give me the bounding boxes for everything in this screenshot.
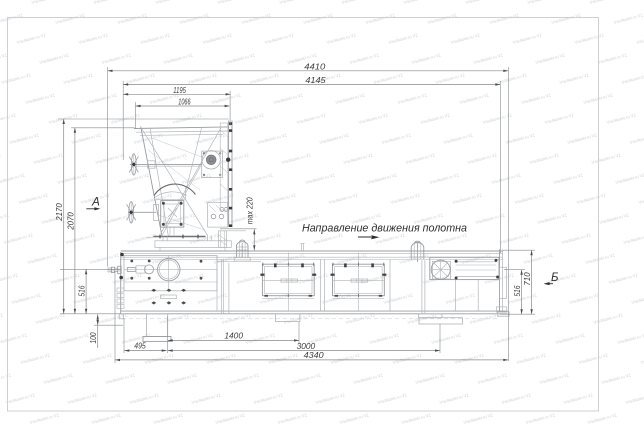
svg-text:VseStanki.ru V2: VseStanki.ru V2 xyxy=(328,192,359,205)
svg-text:VseStanki.ru V2: VseStanki.ru V2 xyxy=(405,152,436,165)
svg-text:VseStanki.ru V2: VseStanki.ru V2 xyxy=(629,132,644,145)
svg-text:VseStanki.ru V2: VseStanki.ru V2 xyxy=(555,332,586,345)
svg-text:VseStanki.ru V2: VseStanki.ru V2 xyxy=(33,152,64,165)
svg-text:VseStanki.ru V2: VseStanki.ru V2 xyxy=(608,272,639,285)
svg-text:VseStanki.ru V2: VseStanki.ru V2 xyxy=(390,192,421,205)
svg-text:VseStanki.ru V2: VseStanki.ru V2 xyxy=(189,232,220,245)
svg-text:4145: 4145 xyxy=(305,75,326,85)
svg-text:VseStanki.ru V2: VseStanki.ru V2 xyxy=(561,232,592,245)
svg-text:VseStanki.ru V2: VseStanki.ru V2 xyxy=(606,112,637,125)
svg-text:VseStanki.ru V2: VseStanki.ru V2 xyxy=(501,392,532,405)
svg-text:VseStanki.ru V2: VseStanki.ru V2 xyxy=(625,392,644,405)
svg-text:VseStanki.ru V2: VseStanki.ru V2 xyxy=(388,32,419,45)
svg-text:516: 516 xyxy=(77,285,87,296)
svg-text:VseStanki.ru V2: VseStanki.ru V2 xyxy=(621,72,644,85)
svg-text:VseStanki.ru V2: VseStanki.ru V2 xyxy=(82,352,113,365)
svg-text:VseStanki.ru V2: VseStanki.ru V2 xyxy=(397,92,428,105)
svg-text:VseStanki.ru V2: VseStanki.ru V2 xyxy=(589,0,620,5)
svg-text:VseStanki.ru V2: VseStanki.ru V2 xyxy=(0,332,28,345)
svg-text:VseStanki.ru V2: VseStanki.ru V2 xyxy=(429,172,460,185)
svg-text:100: 100 xyxy=(88,332,98,343)
svg-text:VseStanki.ru V2: VseStanki.ru V2 xyxy=(613,12,644,25)
svg-text:VseStanki.ru V2: VseStanki.ru V2 xyxy=(245,332,276,345)
svg-text:VseStanki.ru V2: VseStanki.ru V2 xyxy=(369,332,400,345)
svg-text:VseStanki.ru V2: VseStanki.ru V2 xyxy=(439,392,470,405)
svg-text:VseStanki.ru V2: VseStanki.ru V2 xyxy=(539,372,570,385)
svg-text:VseStanki.ru V2: VseStanki.ru V2 xyxy=(172,112,203,125)
svg-text:VseStanki.ru V2: VseStanki.ru V2 xyxy=(25,92,56,105)
svg-text:VseStanki.ru V2: VseStanki.ru V2 xyxy=(392,352,423,365)
svg-text:VseStanki.ru V2: VseStanki.ru V2 xyxy=(125,72,156,85)
svg-text:VseStanki.ru V2: VseStanki.ru V2 xyxy=(29,412,60,425)
svg-text:VseStanki.ru V2: VseStanki.ru V2 xyxy=(427,12,458,25)
svg-text:VseStanki.ru V2: VseStanki.ru V2 xyxy=(587,412,618,425)
svg-text:VseStanki.ru V2: VseStanki.ru V2 xyxy=(91,412,122,425)
svg-text:VseStanki.ru V2: VseStanki.ru V2 xyxy=(535,52,566,65)
svg-text:VseStanki.ru V2: VseStanki.ru V2 xyxy=(512,32,543,45)
svg-text:VseStanki.ru V2: VseStanki.ru V2 xyxy=(599,212,630,225)
svg-text:VseStanki.ru V2: VseStanki.ru V2 xyxy=(330,352,361,365)
svg-text:Направление движения полотна: Направление движения полотна xyxy=(302,223,467,235)
svg-text:VseStanki.ru V2: VseStanki.ru V2 xyxy=(0,312,4,325)
svg-text:VseStanki.ru V2: VseStanki.ru V2 xyxy=(401,412,432,425)
svg-text:VseStanki.ru V2: VseStanki.ru V2 xyxy=(16,32,47,45)
svg-text:VseStanki.ru V2: VseStanki.ru V2 xyxy=(463,412,494,425)
svg-text:VseStanki.ru V2: VseStanki.ru V2 xyxy=(420,112,451,125)
svg-text:VseStanki.ru V2: VseStanki.ru V2 xyxy=(559,72,590,85)
svg-text:VseStanki.ru V2: VseStanki.ru V2 xyxy=(499,232,530,245)
svg-text:VseStanki.ru V2: VseStanki.ru V2 xyxy=(27,252,58,265)
svg-text:VseStanki.ru V2: VseStanki.ru V2 xyxy=(337,252,368,265)
svg-text:VseStanki.ru V2: VseStanki.ru V2 xyxy=(277,412,308,425)
svg-text:VseStanki.ru V2: VseStanki.ru V2 xyxy=(591,152,622,165)
svg-text:VseStanki.ru V2: VseStanki.ru V2 xyxy=(514,192,545,205)
svg-text:VseStanki.ru V2: VseStanki.ru V2 xyxy=(315,392,346,405)
svg-text:VseStanki.ru V2: VseStanki.ru V2 xyxy=(39,52,70,65)
svg-text:VseStanki.ru V2: VseStanki.ru V2 xyxy=(217,0,248,5)
svg-text:VseStanki.ru V2: VseStanki.ru V2 xyxy=(640,352,644,365)
svg-text:VseStanki.ru V2: VseStanki.ru V2 xyxy=(296,112,327,125)
svg-text:VseStanki.ru V2: VseStanki.ru V2 xyxy=(415,372,446,385)
svg-text:VseStanki.ru V2: VseStanki.ru V2 xyxy=(531,312,562,325)
svg-text:VseStanki.ru V2: VseStanki.ru V2 xyxy=(567,132,598,145)
svg-text:VseStanki.ru V2: VseStanki.ru V2 xyxy=(0,152,2,165)
svg-text:VseStanki.ru V2: VseStanki.ru V2 xyxy=(112,272,143,285)
svg-text:VseStanki.ru V2: VseStanki.ru V2 xyxy=(563,392,594,405)
svg-text:VseStanki.ru V2: VseStanki.ru V2 xyxy=(381,132,412,145)
svg-text:VseStanki.ru V2: VseStanki.ru V2 xyxy=(551,12,582,25)
svg-text:VseStanki.ru V2: VseStanki.ru V2 xyxy=(206,352,237,365)
svg-text:VseStanki.ru V2: VseStanki.ru V2 xyxy=(335,92,366,105)
svg-text:VseStanki.ru V2: VseStanki.ru V2 xyxy=(268,352,299,365)
svg-text:VseStanki.ru V2: VseStanki.ru V2 xyxy=(505,132,536,145)
svg-text:max 220: max 220 xyxy=(245,197,254,224)
svg-text:VseStanki.ru V2: VseStanki.ru V2 xyxy=(489,12,520,25)
svg-text:1195: 1195 xyxy=(173,85,186,95)
svg-text:VseStanki.ru V2: VseStanki.ru V2 xyxy=(497,72,528,85)
svg-text:VseStanki.ru V2: VseStanki.ru V2 xyxy=(144,352,175,365)
svg-text:VseStanki.ru V2: VseStanki.ru V2 xyxy=(253,392,284,405)
svg-text:VseStanki.ru V2: VseStanki.ru V2 xyxy=(491,172,522,185)
svg-text:VseStanki.ru V2: VseStanki.ru V2 xyxy=(631,292,644,305)
svg-text:VseStanki.ru V2: VseStanki.ru V2 xyxy=(133,132,164,145)
svg-text:VseStanki.ru V2: VseStanki.ru V2 xyxy=(142,192,173,205)
svg-text:VseStanki.ru V2: VseStanki.ru V2 xyxy=(229,372,260,385)
svg-text:VseStanki.ru V2: VseStanki.ru V2 xyxy=(110,112,141,125)
svg-text:VseStanki.ru V2: VseStanki.ru V2 xyxy=(95,152,126,165)
svg-text:VseStanki.ru V2: VseStanki.ru V2 xyxy=(403,0,434,5)
svg-text:VseStanki.ru V2: VseStanki.ru V2 xyxy=(11,292,42,305)
svg-text:VseStanki.ru V2: VseStanki.ru V2 xyxy=(578,352,609,365)
svg-text:VseStanki.ru V2: VseStanki.ru V2 xyxy=(343,152,374,165)
svg-text:VseStanki.ru V2: VseStanki.ru V2 xyxy=(454,352,485,365)
svg-text:VseStanki.ru V2: VseStanki.ru V2 xyxy=(117,12,148,25)
svg-text:VseStanki.ru V2: VseStanki.ru V2 xyxy=(119,172,150,185)
svg-text:VseStanki.ru V2: VseStanki.ru V2 xyxy=(0,172,26,185)
svg-text:VseStanki.ru V2: VseStanki.ru V2 xyxy=(291,372,322,385)
svg-text:VseStanki.ru V2: VseStanki.ru V2 xyxy=(0,52,8,65)
svg-text:VseStanki.ru V2: VseStanki.ru V2 xyxy=(585,252,616,265)
svg-text:VseStanki.ru V2: VseStanki.ru V2 xyxy=(59,332,90,345)
svg-text:VseStanki.ru V2: VseStanki.ru V2 xyxy=(63,72,94,85)
svg-text:VseStanki.ru V2: VseStanki.ru V2 xyxy=(574,32,605,45)
svg-text:VseStanki.ru V2: VseStanki.ru V2 xyxy=(319,132,350,145)
svg-text:VseStanki.ru V2: VseStanki.ru V2 xyxy=(1,72,32,85)
svg-text:VseStanki.ru V2: VseStanki.ru V2 xyxy=(527,0,558,5)
svg-text:VseStanki.ru V2: VseStanki.ru V2 xyxy=(465,0,496,5)
svg-text:VseStanki.ru V2: VseStanki.ru V2 xyxy=(243,172,274,185)
svg-text:VseStanki.ru V2: VseStanki.ru V2 xyxy=(529,152,560,165)
svg-text:VseStanki.ru V2: VseStanki.ru V2 xyxy=(127,232,158,245)
svg-text:VseStanki.ru V2: VseStanki.ru V2 xyxy=(473,52,504,65)
svg-text:VseStanki.ru V2: VseStanki.ru V2 xyxy=(266,192,297,205)
svg-text:VseStanki.ru V2: VseStanki.ru V2 xyxy=(191,392,222,405)
svg-text:VseStanki.ru V2: VseStanki.ru V2 xyxy=(358,112,389,125)
svg-text:VseStanki.ru V2: VseStanki.ru V2 xyxy=(452,192,483,205)
svg-text:4410: 4410 xyxy=(304,61,325,71)
svg-text:VseStanki.ru V2: VseStanki.ru V2 xyxy=(257,132,288,145)
svg-text:VseStanki.ru V2: VseStanki.ru V2 xyxy=(153,412,184,425)
svg-text:VseStanki.ru V2: VseStanki.ru V2 xyxy=(20,352,51,365)
svg-text:VseStanki.ru V2: VseStanki.ru V2 xyxy=(0,112,17,125)
svg-text:VseStanki.ru V2: VseStanki.ru V2 xyxy=(18,192,49,205)
svg-text:VseStanki.ru V2: VseStanki.ru V2 xyxy=(569,292,600,305)
svg-text:VseStanki.ru V2: VseStanki.ru V2 xyxy=(57,172,88,185)
svg-text:VseStanki.ru V2: VseStanki.ru V2 xyxy=(593,312,624,325)
svg-text:VseStanki.ru V2: VseStanki.ru V2 xyxy=(279,0,310,5)
svg-text:1400: 1400 xyxy=(224,331,243,341)
svg-text:VseStanki.ru V2: VseStanki.ru V2 xyxy=(78,32,109,45)
svg-text:VseStanki.ru V2: VseStanki.ru V2 xyxy=(467,152,498,165)
svg-text:VseStanki.ru V2: VseStanki.ru V2 xyxy=(349,52,380,65)
svg-text:Б: Б xyxy=(551,272,559,284)
svg-text:VseStanki.ru V2: VseStanki.ru V2 xyxy=(179,12,210,25)
svg-text:VseStanki.ru V2: VseStanki.ru V2 xyxy=(225,52,256,65)
svg-text:VseStanki.ru V2: VseStanki.ru V2 xyxy=(167,372,198,385)
svg-text:VseStanki.ru V2: VseStanki.ru V2 xyxy=(459,92,490,105)
svg-text:516: 516 xyxy=(512,285,522,296)
svg-text:VseStanki.ru V2: VseStanki.ru V2 xyxy=(5,392,36,405)
svg-text:VseStanki.ru V2: VseStanki.ru V2 xyxy=(365,12,396,25)
svg-text:4340: 4340 xyxy=(304,350,324,360)
svg-text:VseStanki.ru V2: VseStanki.ru V2 xyxy=(601,372,632,385)
svg-text:VseStanki.ru V2: VseStanki.ru V2 xyxy=(204,192,235,205)
svg-text:VseStanki.ru V2: VseStanki.ru V2 xyxy=(35,312,66,325)
svg-text:VseStanki.ru V2: VseStanki.ru V2 xyxy=(43,372,74,385)
svg-text:VseStanki.ru V2: VseStanki.ru V2 xyxy=(281,152,312,165)
svg-text:VseStanki.ru V2: VseStanki.ru V2 xyxy=(435,72,466,85)
svg-text:VseStanki.ru V2: VseStanki.ru V2 xyxy=(155,0,186,5)
svg-text:VseStanki.ru V2: VseStanki.ru V2 xyxy=(71,132,102,145)
svg-text:VseStanki.ru V2: VseStanki.ru V2 xyxy=(202,32,233,45)
svg-text:VseStanki.ru V2: VseStanki.ru V2 xyxy=(445,292,476,305)
svg-text:VseStanki.ru V2: VseStanki.ru V2 xyxy=(305,172,336,185)
svg-text:VseStanki.ru V2: VseStanki.ru V2 xyxy=(638,192,644,205)
svg-text:VseStanki.ru V2: VseStanki.ru V2 xyxy=(129,392,160,405)
svg-text:1066: 1066 xyxy=(178,97,191,107)
svg-text:VseStanki.ru V2: VseStanki.ru V2 xyxy=(623,232,644,245)
svg-text:VseStanki.ru V2: VseStanki.ru V2 xyxy=(273,92,304,105)
svg-text:VseStanki.ru V2: VseStanki.ru V2 xyxy=(105,372,136,385)
svg-text:VseStanki.ru V2: VseStanki.ru V2 xyxy=(431,332,462,345)
svg-text:VseStanki.ru V2: VseStanki.ru V2 xyxy=(0,212,10,225)
svg-text:VseStanki.ru V2: VseStanki.ru V2 xyxy=(9,132,40,145)
svg-text:VseStanki.ru V2: VseStanki.ru V2 xyxy=(0,272,19,285)
svg-text:VseStanki.ru V2: VseStanki.ru V2 xyxy=(525,412,556,425)
svg-text:495: 495 xyxy=(134,340,146,350)
svg-text:VseStanki.ru V2: VseStanki.ru V2 xyxy=(65,232,96,245)
svg-text:2170: 2170 xyxy=(54,203,64,222)
svg-text:VseStanki.ru V2: VseStanki.ru V2 xyxy=(373,72,404,85)
svg-text:VseStanki.ru V2: VseStanki.ru V2 xyxy=(636,32,644,45)
svg-text:VseStanki.ru V2: VseStanki.ru V2 xyxy=(475,212,506,225)
svg-text:VseStanki.ru V2: VseStanki.ru V2 xyxy=(615,172,644,185)
svg-text:VseStanki.ru V2: VseStanki.ru V2 xyxy=(367,172,398,185)
svg-text:VseStanki.ru V2: VseStanki.ru V2 xyxy=(450,32,481,45)
svg-text:VseStanki.ru V2: VseStanki.ru V2 xyxy=(353,372,384,385)
svg-text:VseStanki.ru V2: VseStanki.ru V2 xyxy=(251,232,282,245)
svg-text:VseStanki.ru V2: VseStanki.ru V2 xyxy=(157,152,188,165)
svg-text:VseStanki.ru V2: VseStanki.ru V2 xyxy=(553,172,584,185)
svg-text:VseStanki.ru V2: VseStanki.ru V2 xyxy=(537,212,568,225)
svg-text:VseStanki.ru V2: VseStanki.ru V2 xyxy=(0,12,24,25)
svg-text:VseStanki.ru V2: VseStanki.ru V2 xyxy=(0,372,12,385)
svg-text:VseStanki.ru V2: VseStanki.ru V2 xyxy=(101,52,132,65)
svg-text:VseStanki.ru V2: VseStanki.ru V2 xyxy=(241,12,272,25)
svg-text:VseStanki.ru V2: VseStanki.ru V2 xyxy=(219,152,250,165)
svg-text:VseStanki.ru V2: VseStanki.ru V2 xyxy=(50,272,81,285)
svg-text:VseStanki.ru V2: VseStanki.ru V2 xyxy=(87,92,118,105)
svg-text:VseStanki.ru V2: VseStanki.ru V2 xyxy=(215,412,246,425)
svg-text:VseStanki.ru V2: VseStanki.ru V2 xyxy=(576,192,607,205)
svg-text:VseStanki.ru V2: VseStanki.ru V2 xyxy=(187,72,218,85)
svg-text:VseStanki.ru V2: VseStanki.ru V2 xyxy=(597,52,628,65)
svg-text:VseStanki.ru V2: VseStanki.ru V2 xyxy=(275,252,306,265)
svg-text:VseStanki.ru V2: VseStanki.ru V2 xyxy=(89,252,120,265)
svg-text:VseStanki.ru V2: VseStanki.ru V2 xyxy=(443,132,474,145)
svg-text:710: 710 xyxy=(522,272,532,286)
svg-text:VseStanki.ru V2: VseStanki.ru V2 xyxy=(516,352,547,365)
svg-text:VseStanki.ru V2: VseStanki.ru V2 xyxy=(521,92,552,105)
svg-text:VseStanki.ru V2: VseStanki.ru V2 xyxy=(461,252,492,265)
svg-text:VseStanki.ru V2: VseStanki.ru V2 xyxy=(411,52,442,65)
svg-text:VseStanki.ru V2: VseStanki.ru V2 xyxy=(183,332,214,345)
svg-text:2070: 2070 xyxy=(65,212,75,231)
svg-text:VseStanki.ru V2: VseStanki.ru V2 xyxy=(234,112,265,125)
svg-text:VseStanki.ru V2: VseStanki.ru V2 xyxy=(264,32,295,45)
svg-text:VseStanki.ru V2: VseStanki.ru V2 xyxy=(339,412,370,425)
svg-text:VseStanki.ru V2: VseStanki.ru V2 xyxy=(67,392,98,405)
svg-text:А: А xyxy=(91,197,100,209)
svg-text:VseStanki.ru V2: VseStanki.ru V2 xyxy=(163,52,194,65)
svg-text:VseStanki.ru V2: VseStanki.ru V2 xyxy=(477,372,508,385)
svg-text:VseStanki.ru V2: VseStanki.ru V2 xyxy=(303,12,334,25)
svg-text:VseStanki.ru V2: VseStanki.ru V2 xyxy=(383,292,414,305)
svg-text:VseStanki.ru V2: VseStanki.ru V2 xyxy=(31,0,62,5)
svg-text:VseStanki.ru V2: VseStanki.ru V2 xyxy=(341,0,372,5)
svg-text:VseStanki.ru V2: VseStanki.ru V2 xyxy=(617,332,644,345)
svg-text:VseStanki.ru V2: VseStanki.ru V2 xyxy=(377,392,408,405)
svg-text:VseStanki.ru V2: VseStanki.ru V2 xyxy=(544,112,575,125)
svg-text:VseStanki.ru V2: VseStanki.ru V2 xyxy=(93,0,124,5)
svg-text:VseStanki.ru V2: VseStanki.ru V2 xyxy=(523,252,554,265)
svg-text:VseStanki.ru V2: VseStanki.ru V2 xyxy=(55,12,86,25)
svg-text:VseStanki.ru V2: VseStanki.ru V2 xyxy=(249,72,280,85)
svg-text:VseStanki.ru V2: VseStanki.ru V2 xyxy=(326,32,357,45)
svg-text:VseStanki.ru V2: VseStanki.ru V2 xyxy=(140,32,171,45)
